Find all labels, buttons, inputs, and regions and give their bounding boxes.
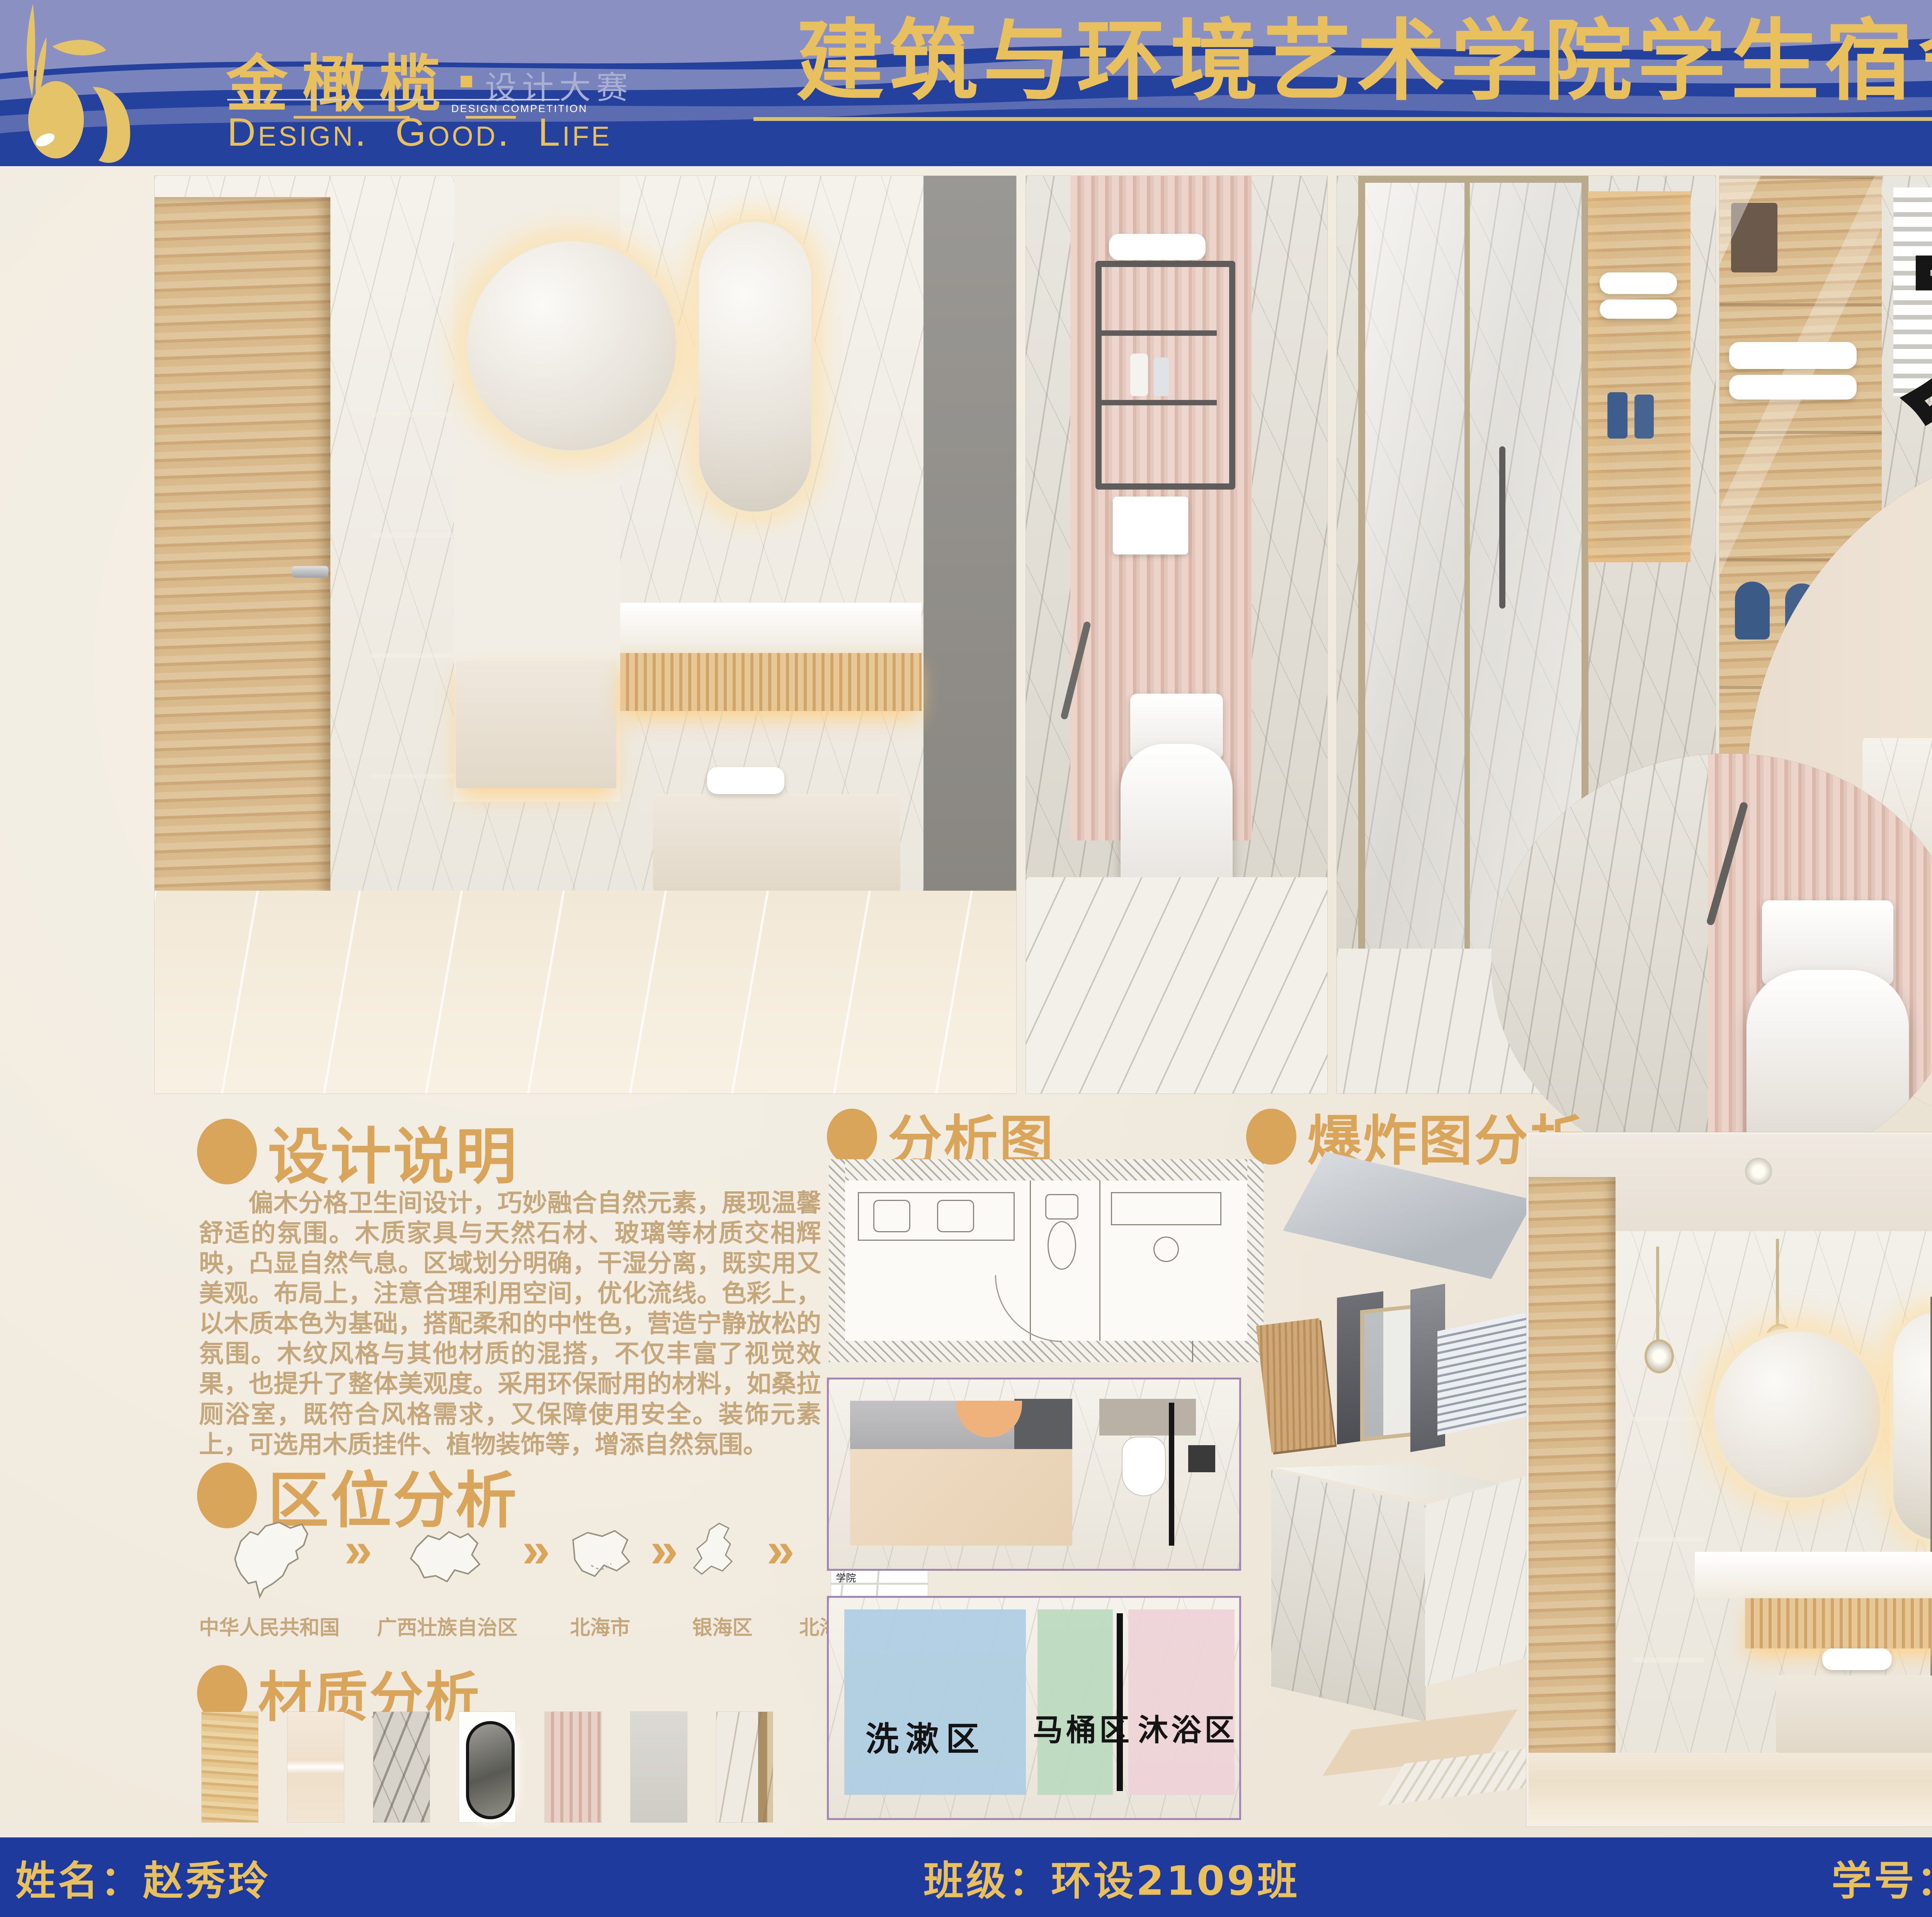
zone-label-shower: 沐浴区 — [1138, 1706, 1238, 1749]
swatch-white-marble-gold-icon — [716, 1712, 773, 1822]
brand-rule — [227, 99, 560, 100]
location-step-china: 中华人民共和国 — [199, 1509, 340, 1640]
slogan-word-life: Life — [538, 110, 612, 154]
student-name: 姓名：赵秀玲 — [15, 1848, 270, 1907]
design-note-heading: 设计说明 — [268, 1107, 518, 1196]
bullet-icon — [827, 1109, 877, 1165]
pendant-cord — [1776, 1239, 1779, 1328]
wall-hatch — [829, 1159, 845, 1362]
location-step-label: 广西壮族自治区 — [377, 1611, 517, 1640]
brand-dot-icon — [461, 76, 472, 87]
zoning-floor-plan: 洗漱区 马桶区 沐浴区 — [827, 1596, 1241, 1820]
header-banner: 金橄榄 设计大赛 DESIGN COMPETITION Design.Good.… — [0, 0, 1932, 166]
door-handle — [292, 566, 328, 578]
towel — [1822, 1648, 1892, 1670]
vanity-counter — [1695, 1552, 1932, 1598]
cad-wall-line — [1192, 1341, 1193, 1362]
exploded-blind-panel — [1437, 1312, 1528, 1436]
zone-label-toilet: 马桶区 — [1033, 1706, 1133, 1749]
bottle — [1153, 357, 1169, 396]
zone-wash — [844, 1609, 1026, 1795]
towel — [1600, 299, 1677, 319]
floor — [1529, 1753, 1932, 1824]
cad-door-swing — [995, 1275, 1062, 1342]
bottle — [1130, 354, 1148, 396]
marble-floor — [1026, 877, 1327, 1094]
cad-floor-plan — [829, 1159, 1264, 1362]
map-yinhai-icon — [683, 1509, 762, 1604]
wall-hatch — [829, 1159, 1264, 1180]
tall-shelf-column — [1930, 1297, 1932, 1737]
location-steps: 中华人民共和国 » 广西壮族自治区 » 北海市 » 银海区 » — [199, 1509, 802, 1640]
location-step-label: 中华人民共和国 — [199, 1611, 340, 1640]
zone-shower — [1128, 1609, 1235, 1795]
swatch-grey-marble-icon — [373, 1712, 430, 1822]
round-mirror — [464, 238, 680, 454]
exploded-room-shell-left — [1271, 1470, 1426, 1722]
bench-drawer — [653, 794, 900, 891]
location-step-label: 北海市 — [570, 1611, 630, 1640]
cad-sink — [937, 1200, 974, 1232]
oval-mirror — [1890, 1308, 1932, 1543]
niche-shelf — [1588, 191, 1690, 562]
towel — [707, 767, 784, 794]
rack-shelf — [1102, 400, 1217, 405]
student-id: 学号：202140866 — [1832, 1848, 1932, 1907]
toilet-paper-towel — [1113, 497, 1188, 555]
wall-hatch — [829, 1341, 1264, 1362]
vanity-cabinet-left — [456, 661, 616, 788]
shower-hose — [1499, 446, 1505, 609]
swatch-pink-flute-icon — [545, 1712, 601, 1822]
shampoo-bottle — [1634, 395, 1654, 439]
oval-mirror — [696, 218, 815, 515]
plan-glass-wall — [1169, 1403, 1174, 1546]
towel — [1109, 234, 1206, 260]
map-beihai-icon — [555, 1512, 646, 1604]
exploded-room-shell-right — [1425, 1472, 1541, 1687]
cad-sink — [873, 1200, 910, 1232]
plan-dark-cabinet — [1014, 1399, 1072, 1451]
chevron-arrow-icon: » — [767, 1521, 794, 1579]
chevron-arrow-icon: » — [522, 1521, 550, 1579]
render-room-overview — [1526, 1132, 1932, 1827]
wood-door — [1529, 1177, 1616, 1764]
slogan-rule — [466, 116, 516, 119]
exploded-ceiling-slab — [1283, 1152, 1534, 1279]
location-step-guangxi: 广西壮族自治区 — [377, 1509, 517, 1640]
page-title: 建筑与环境艺术学院学生宿舍卫生间设计大赛 — [796, 11, 1932, 111]
section-design-note: 设计说明 — [197, 1107, 518, 1196]
plan-toilet-shelf — [1099, 1399, 1196, 1436]
wood-slat-band — [620, 653, 922, 711]
rendered-floor-plan — [827, 1378, 1241, 1571]
bullet-icon — [197, 1119, 257, 1184]
zone-toilet — [1037, 1609, 1113, 1795]
cad-drain — [1153, 1237, 1179, 1262]
swatch-led-mirror-icon — [459, 1712, 515, 1822]
mirror-oval-icon — [466, 1721, 515, 1819]
exploded-view-diagram — [1264, 1140, 1549, 1820]
student-class: 班级：环设2109班 — [923, 1848, 1299, 1907]
towel — [1600, 272, 1677, 294]
chevron-arrow-icon: » — [650, 1521, 678, 1579]
map-guangxi-icon — [393, 1509, 501, 1604]
floor — [155, 891, 1016, 1094]
ceiling-spotlight — [1745, 1158, 1772, 1185]
slogan-rule — [294, 116, 410, 119]
zone-label-wash: 洗漱区 — [866, 1712, 986, 1760]
tall-shelf-column — [1633, 1301, 1704, 1737]
brand-slogan: Design.Good.Life — [227, 110, 639, 155]
exploded-door — [1256, 1318, 1335, 1453]
plan-glass-wall — [1117, 1613, 1123, 1791]
location-step-label: 银海区 — [692, 1611, 752, 1640]
title-underline — [753, 117, 1932, 121]
cad-partition — [1099, 1180, 1100, 1341]
cad-shower-shelf — [1111, 1192, 1221, 1225]
swatch-beige-stone-icon — [287, 1712, 344, 1822]
render-toilet-area — [1026, 176, 1327, 1094]
swatch-wood-grain-icon — [202, 1712, 258, 1822]
golden-olive-icon — [10, 0, 211, 166]
cad-cistern — [1045, 1194, 1078, 1220]
swatch-grey-matte-icon — [631, 1712, 687, 1822]
art-title-char-mu: 木 — [1905, 195, 1932, 466]
render-vanity-room — [155, 176, 1016, 1094]
design-note-paragraph: 偏木分格卫生间设计，巧妙融合自然元素，展现温馨舒适的氛围。木质家具与天然石材、玻… — [199, 1188, 821, 1460]
location-step-beihai: 北海市 — [555, 1509, 646, 1640]
round-mirror — [1710, 1328, 1884, 1502]
cad-toilet — [1048, 1221, 1076, 1270]
plan-shower-head — [1188, 1445, 1215, 1472]
plan-beige-floor — [850, 1449, 1072, 1546]
bench-drawer — [1776, 1675, 1932, 1753]
brand-subtitle: 设计大赛 — [485, 62, 633, 108]
wood-slat-band — [1745, 1598, 1932, 1648]
competition-poster: 金橄榄 设计大赛 DESIGN COMPETITION Design.Good.… — [0, 0, 1932, 1917]
plan-toilet — [1122, 1437, 1165, 1495]
map-china-icon — [209, 1509, 329, 1604]
rack-shelf — [1102, 330, 1217, 336]
vanity-counter-right — [620, 603, 922, 653]
location-step-yinhai: 银海区 — [683, 1509, 762, 1640]
chevron-arrow-icon: » — [344, 1521, 372, 1579]
footer-bar: 姓名：赵秀玲 班级：环设2109班 学号：202140866 — [0, 1837, 1932, 1917]
glass-divider — [1464, 176, 1470, 1030]
shampoo-bottle — [1607, 392, 1628, 439]
